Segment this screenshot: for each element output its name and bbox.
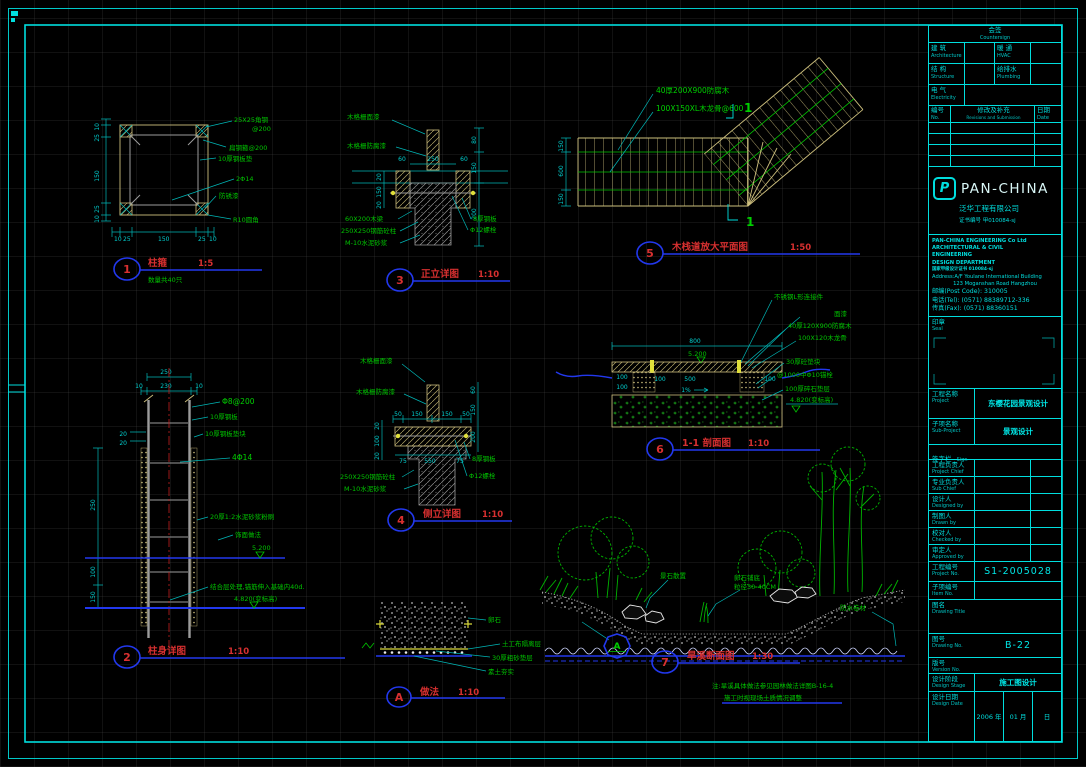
detail-1-title: 1 柱箍 1:5 数量共40只: [114, 257, 262, 284]
company-name: 泛华工程有限公司: [959, 203, 1057, 214]
d5-label-joist: 100X150XL木龙骨@600: [656, 103, 744, 113]
f-en: Item No.: [932, 591, 974, 597]
f-cn: 设计日期: [932, 694, 974, 702]
d7-label-pebble: 卵石铺底: [734, 573, 761, 582]
d3-title: 正立详图: [421, 268, 459, 280]
d6-scale: 1:10: [748, 439, 769, 449]
d1-dim: 10: [94, 215, 101, 223]
d2-label-rebar: 4Φ14: [232, 453, 252, 462]
rev-cn: 修改及补充: [953, 107, 1034, 115]
field-drawing-title: 图名Drawing Title 景架、木栈道、旱溪详图: [929, 600, 1061, 634]
signature-cell: [1031, 545, 1061, 561]
d7-scale: 1:30: [752, 652, 773, 662]
cs-cn: 结 构: [931, 66, 964, 74]
d1-dim: 10: [209, 236, 217, 243]
f-en: Checked by: [932, 537, 974, 543]
field-sub-chief: 专业负责人Sub Chief: [929, 477, 1061, 494]
planting-left: [540, 517, 652, 602]
countersign-blank: [1031, 64, 1061, 84]
countersign-blank: [1031, 43, 1061, 63]
detail-4-drawing: 木格栅面漆 木格栅防腐漆 50 150 150 50 20 100 20 60 …: [340, 356, 512, 531]
version-no-value: [975, 658, 1061, 673]
f-en: Project Chief: [932, 469, 974, 475]
cs-en: Architecture: [931, 53, 964, 59]
detail-3-drawing: 木格栅面漆 木格栅防腐漆 250 60 60 80 150 200 20 150…: [341, 112, 510, 291]
d2-label-anchor-note: 结合层处理,锚筋伸入基础内40d.: [210, 582, 305, 591]
d6-label-connector: 不锈钢L形连接件: [774, 292, 824, 301]
d1-note: 数量共40只: [148, 275, 183, 284]
d5-label-deck: 40厚200X900防腐木: [656, 85, 730, 95]
revision-col-desc: 修改及补充 Revisions and Submission: [951, 106, 1035, 122]
d4-dim: 75: [399, 458, 407, 465]
d4-title: 侧立详图: [423, 508, 461, 520]
firm-address-block: PAN-CHINA ENGINEERING Co Ltd ARCHITECTUR…: [929, 235, 1061, 317]
d4-dim: 150: [441, 411, 453, 418]
d1-dim: 150: [158, 236, 170, 243]
d3-dim-60: 60: [398, 156, 406, 163]
d3-dim-right: 80: [471, 136, 478, 144]
d1-label-flat-hoop: 扁钢箍@200: [229, 143, 267, 152]
d4-dim: 50: [462, 411, 470, 418]
d3-scale: 1:10: [478, 270, 499, 280]
field-subproject: 子项名称Sub-Project 景观设计: [929, 419, 1061, 445]
field-design-stage: 设计阶段Design Stage 施工图设计: [929, 674, 1061, 692]
detail-2-drawing: 250 230 10 10 20 20 250 100 150: [85, 368, 345, 668]
d4-dim: 50: [394, 411, 402, 418]
d2-dim-10: 10: [135, 383, 143, 390]
cs-cn: 给排水: [997, 66, 1030, 74]
field-item-no: 子项编号Item No.: [929, 582, 1061, 600]
d2-dim-left: 250: [90, 499, 97, 511]
d2-label-steel-plate: 10厚钢板: [210, 412, 238, 421]
d4-label-plate: 8厚钢板: [472, 454, 496, 463]
pan-china-logo-icon: P: [933, 177, 956, 200]
item-no-value: [975, 582, 1061, 599]
date-year: 2006 年: [975, 692, 1004, 741]
d6-label-joist: 100X120木龙骨: [798, 333, 847, 342]
d3-dim-left: 150: [376, 186, 383, 198]
d6-label-anchor: @1000中Φ10锚栓: [777, 370, 833, 379]
d1-dim: 25: [123, 236, 131, 243]
d3-label-mortar: M-10水泥砂浆: [345, 238, 388, 247]
d2-label-finish: 饰面做法: [235, 530, 262, 539]
field-project-chief: 工程负责人Project Chief: [929, 460, 1061, 477]
d1-label-spacing: @200: [252, 125, 271, 133]
cs-en: HVAC: [997, 53, 1030, 59]
d2-label-steel-pad: 10厚钢板垫块: [205, 429, 246, 438]
d4-label-column: 250X250钢筋砼柱: [340, 472, 396, 481]
f-cn: 审定人: [932, 547, 974, 555]
d4-dim: 200: [470, 431, 477, 443]
countersign-cell-electricity: 电 气 Electricity: [929, 85, 965, 105]
countersign-cell-structure: 结 构 Structure: [929, 64, 965, 84]
da-letter: A: [395, 691, 404, 704]
signature-cell: [975, 460, 1031, 476]
f-cn: 工程名称: [932, 391, 974, 399]
detail-3-title: 3 正立详图 1:10: [387, 268, 510, 291]
d3-number: 3: [396, 274, 404, 287]
d7-label-membrane: 防水卷材: [840, 603, 867, 612]
title-block: 会签 Countersign 建 筑 Architecture 暖 通 HVAC…: [928, 25, 1062, 742]
d4-dim: 150: [411, 411, 423, 418]
f-en: Design Stage: [932, 683, 974, 689]
detail-4-title: 4 侧立详图 1:10: [388, 508, 512, 531]
cs-cn: 暖 通: [997, 45, 1030, 53]
d3-label-plate: 8厚钢板: [473, 214, 497, 223]
f-cn: 校对人: [932, 530, 974, 538]
d3-dim-60: 60: [460, 156, 468, 163]
d3-label-topcoat: 木格栅面漆: [347, 112, 380, 121]
field-designed-by: 设计人Designed by: [929, 494, 1061, 511]
d6-title: 1-1 剖面图: [682, 437, 731, 449]
d3-dim-right: 150: [471, 162, 478, 174]
seal-label-cn: 印章: [932, 319, 1058, 327]
d6-dim-100: 100: [616, 384, 628, 391]
address-line: Address:A/F Youlane International Buildi…: [932, 274, 1058, 280]
d1-label-paint: 防锈漆: [219, 191, 239, 200]
project-name-value: 东樱花园景观设计: [975, 389, 1061, 418]
subproject-value: 景观设计: [975, 419, 1061, 444]
signature-cell: [1031, 511, 1061, 527]
cad-sheet-background: { "sheet": { "bg": "#000000", "accent_cy…: [0, 0, 1086, 767]
f-en: Project No.: [932, 571, 974, 577]
signature-cell: [975, 494, 1031, 510]
da-label-sand: 30厚粗砂垫层: [492, 653, 533, 662]
d2-dim-20: 20: [119, 431, 127, 438]
brand-block: P PAN-CHINA 泛华工程有限公司 证书编号 甲010084-sj: [929, 167, 1061, 235]
f-cn: 工程编号: [932, 564, 974, 572]
countersign-cell-architecture: 建 筑 Architecture: [929, 43, 965, 63]
countersign-blank: [965, 85, 1061, 105]
rev-cn: 编号: [931, 107, 950, 115]
d4-dim: 550: [424, 458, 436, 465]
signature-cell: [1031, 460, 1061, 476]
detail-7-drawing: 景石散置 卵石铺底 粒径30-40CM 防水卷材 A 注:旱溪具体做法参见园林做…: [540, 447, 905, 703]
f-en: Version No.: [932, 667, 975, 673]
design-stage-value: 施工图设计: [975, 674, 1061, 691]
d5-dim: 150: [558, 193, 565, 205]
cs-en: Plumbing: [997, 74, 1030, 80]
detail-6-title: 6 1-1 剖面图 1:10: [647, 437, 820, 460]
d5-section-mark-top: 1: [744, 101, 752, 115]
d2-title: 柱身详图: [148, 645, 186, 657]
d4-dim: 60: [470, 386, 477, 394]
rev-cn: 日期: [1037, 107, 1061, 115]
f-cn: 制图人: [932, 513, 974, 521]
countersign-label-cn: 会签: [929, 27, 1061, 35]
drawing-no-value: B-22: [975, 634, 1061, 657]
da-label-geotextile: 土工布隔离层: [502, 639, 542, 648]
d2-dim-10: 10: [195, 383, 203, 390]
d5-section-mark-bottom: 1: [746, 215, 754, 229]
d6-dim-500: 500: [684, 376, 696, 383]
d6-number: 6: [656, 443, 664, 456]
d5-scale: 1:50: [790, 243, 811, 253]
address-line: 123 Moganshan Road Hangzhou: [932, 281, 1058, 287]
d2-dim-250: 250: [160, 369, 172, 376]
f-en: Approved by: [932, 554, 974, 560]
f-cn: 图号: [932, 636, 975, 644]
d1-dim: 25: [198, 236, 206, 243]
f-cn: 图名: [932, 602, 975, 610]
field-design-date: 设计日期Design Date 2006 年 01 月 日: [929, 692, 1061, 741]
d6-dim-800: 800: [689, 338, 701, 345]
d2-level-5200: 5.200: [252, 544, 271, 552]
f-cn: 子项名称: [932, 421, 974, 429]
seal-corners: [932, 336, 1056, 386]
d1-label-rebar: 2Φ14: [236, 175, 254, 183]
d7-label-pebble-size: 粒径30-40CM: [734, 582, 776, 591]
d4-dim: 150: [470, 404, 477, 416]
detail-1-drawing: 25X25角钢 @200 扁钢箍@200 10厚钢板垫 2Φ14 防锈漆 R10…: [94, 115, 271, 284]
detail-a-drawing: 卵石 土工布隔离层 30厚粗砂垫层 素土夯实 A 做法 1:10: [362, 602, 542, 707]
d5-dim: 600: [558, 165, 565, 177]
d4-dim: 20: [374, 452, 381, 460]
d3-dim-left: 20: [376, 173, 383, 181]
signature-cell: [975, 528, 1031, 544]
f-en: Sub Chief: [932, 486, 974, 492]
signature-cell: [975, 545, 1031, 561]
d6-dim-100: 100: [654, 376, 666, 383]
d3-dim-left: 20: [376, 201, 383, 209]
f-en: Drawing No.: [932, 643, 975, 649]
revision-col-no: 编号 No.: [929, 106, 951, 122]
cs-cn: 建 筑: [931, 45, 964, 53]
f-cn: 设计人: [932, 496, 974, 504]
d7-ref-letter: A: [614, 642, 621, 652]
date-month: 01 月: [1004, 692, 1033, 741]
d2-dim-left: 100: [90, 566, 97, 578]
field-drawing-no: 图号Drawing No. B-22: [929, 634, 1061, 658]
signature-cell: [1031, 477, 1061, 493]
d6-label-topcoat: 面漆: [834, 309, 848, 318]
signature-cell: [1031, 494, 1061, 510]
detail-6-drawing: 800 5.200 500 1% 100 100 100 100 4.820(变…: [556, 292, 852, 460]
d3-label-column: 250X250钢筋砼柱: [341, 226, 397, 235]
detail-a-title: A 做法 1:10: [387, 686, 505, 707]
field-project-no: 工程编号Project No. S1-2005028: [929, 562, 1061, 582]
field-version-no: 版号Version No.: [929, 658, 1061, 674]
firm-line: ARCHITECTURAL & CIVIL: [932, 245, 1058, 251]
d4-label-mortar: M-10水泥砂浆: [344, 484, 387, 493]
d4-dim: 100: [374, 435, 381, 447]
d7-note-1: 注:旱溪具体做法参见园林做法详图B-16-4: [712, 681, 833, 690]
d7-note-2: 施工时视现场土质情况调整: [724, 693, 803, 702]
d5-number: 5: [646, 247, 654, 260]
d2-dim-left: 150: [90, 591, 97, 603]
rev-en: Revisions and Submission: [953, 115, 1034, 121]
countersign-blank: [965, 64, 995, 84]
d2-scale: 1:10: [228, 647, 249, 657]
d1-dim: 25: [94, 134, 101, 142]
seal-block: 印章 Seal: [929, 317, 1061, 389]
revision-table: 编号 No. 修改及补充 Revisions and Submission 日期…: [929, 106, 1061, 167]
cs-cn: 电 气: [931, 87, 964, 95]
d2-label-stirrup: Φ8@200: [222, 397, 255, 406]
f-en: Drawing Title: [932, 609, 975, 615]
d1-title: 柱箍: [148, 257, 168, 269]
d4-label-bolt: Φ12螺栓: [469, 471, 496, 480]
d6-label-deck: 40厚120X900防腐木: [788, 321, 852, 330]
f-en: Design Date: [932, 701, 974, 707]
d1-label-radius: R10圆角: [233, 215, 259, 224]
cs-en: Structure: [931, 74, 964, 80]
countersign-table: 会签 Countersign 建 筑 Architecture 暖 通 HVAC…: [929, 26, 1061, 106]
d2-dim-230: 230: [160, 383, 172, 390]
d1-scale: 1:5: [198, 259, 213, 269]
d6-dim-100: 100: [616, 374, 628, 381]
d4-label-topcoat: 木格栅面漆: [360, 356, 393, 365]
d6-label-pad: 30厚砼垫块: [786, 357, 821, 366]
d3-label-beam: 60X200木梁: [345, 214, 384, 223]
f-cn: 工程负责人: [932, 462, 974, 470]
countersign-cell-plumbing: 给排水 Plumbing: [995, 64, 1031, 84]
revision-col-date: 日期 Date: [1035, 106, 1061, 122]
d4-number: 4: [397, 514, 405, 527]
date-day: 日: [1033, 692, 1061, 741]
field-checked-by: 校对人Checked by: [929, 528, 1061, 545]
d1-dim: 10: [94, 123, 101, 131]
f-en: Designed by: [932, 503, 974, 509]
brand-name: PAN-CHINA: [961, 181, 1049, 197]
cs-en: Electricity: [931, 95, 964, 101]
d4-label-preservative: 木格栅防腐漆: [356, 387, 396, 396]
d2-label-mortar: 20厚1:2水泥砂浆粉刷: [210, 512, 274, 521]
contact-postcode: 邮编(Post Code): 310005: [932, 288, 1058, 295]
signature-cell: [975, 511, 1031, 527]
f-cn: 子项编号: [932, 584, 974, 592]
f-cn: 设计阶段: [932, 676, 974, 684]
f-en: Project: [932, 398, 974, 404]
firm-line: PAN-CHINA ENGINEERING Co Ltd: [932, 238, 1058, 244]
detail-5-title: 5 木栈道放大平面图 1:50: [637, 241, 860, 264]
field-drawn-by: 制图人Drawn by: [929, 511, 1061, 528]
d3-label-bolt: Φ12螺栓: [470, 225, 497, 234]
da-label-soil: 素土夯实: [488, 667, 515, 676]
d2-number: 2: [123, 651, 131, 664]
d5-title: 木栈道放大平面图: [671, 241, 748, 253]
d7-label-stones: 景石散置: [660, 571, 687, 580]
signature-cell: [1031, 528, 1061, 544]
project-no-value: S1-2005028: [975, 562, 1061, 581]
da-scale: 1:10: [458, 688, 479, 698]
d1-label-steel-pad: 10厚钢板垫: [218, 154, 253, 163]
detail-5-drawing: 150 600 150 40厚200X900防腐木 100X150XL木龙骨@6…: [558, 57, 863, 264]
d1-dim: 25: [94, 205, 101, 213]
drawing-canvas: 25X25角钢 @200 扁钢箍@200 10厚钢板垫 2Φ14 防锈漆 R10…: [0, 0, 1086, 767]
firm-line: 国家甲级设计证书 010084-sj: [932, 267, 1058, 273]
certificate-no: 证书编号 甲010084-sj: [959, 216, 1057, 224]
countersign-cell-hvac: 暖 通 HVAC: [995, 43, 1031, 63]
countersign-blank: [965, 43, 995, 63]
contact-fax: 传真(Fax): (0571) 88360151: [932, 305, 1058, 312]
da-title: 做法: [419, 686, 440, 698]
d3-label-preservative: 木格栅防腐漆: [347, 141, 387, 150]
countersign-label-en: Countersign: [929, 35, 1061, 41]
field-project: 工程名称Project 东樱花园景观设计: [929, 389, 1061, 419]
d6-slope: 1%: [681, 387, 691, 394]
d7-title: 旱溪断面图: [687, 650, 735, 662]
f-cn: 版号: [932, 660, 975, 668]
f-en: Drawn by: [932, 520, 974, 526]
d1-number: 1: [123, 263, 131, 276]
signature-cell: [975, 477, 1031, 493]
d6-label-gravel: 100厚碎石垫层: [785, 384, 830, 393]
field-approved-by: 审定人Approved by: [929, 545, 1061, 562]
rev-en: No.: [931, 115, 950, 121]
d7-number: 7: [661, 656, 669, 669]
planting-right: [738, 447, 898, 596]
d5-dim: 150: [558, 140, 565, 152]
d1-dim: 150: [94, 170, 101, 182]
contact-tel: 电话(Tel): (0571) 88389712-336: [932, 297, 1058, 304]
f-en: Sub-Project: [932, 428, 974, 434]
detail-2-title: 2 柱身详图 1:10: [114, 645, 345, 668]
firm-line: DESIGN DEPARTMENT: [932, 260, 1058, 266]
d4-dim: 20: [374, 422, 381, 430]
rev-en: Date: [1037, 115, 1061, 121]
firm-line: ENGINEERING: [932, 252, 1058, 258]
da-label-pebble: 卵石: [488, 615, 502, 624]
d1-dim: 10: [114, 236, 122, 243]
d1-label-angle-steel: 25X25角钢: [234, 115, 268, 124]
seal-label-en: Seal: [932, 326, 1058, 332]
f-cn: 专业负责人: [932, 479, 974, 487]
d4-scale: 1:10: [482, 510, 503, 520]
d6-level-4820: 4.820(变标高): [790, 395, 833, 404]
d3-dim-250: 250: [427, 156, 439, 163]
d2-dim-20: 20: [119, 440, 127, 447]
field-sign: 签字栏 Sign: [929, 445, 1061, 460]
